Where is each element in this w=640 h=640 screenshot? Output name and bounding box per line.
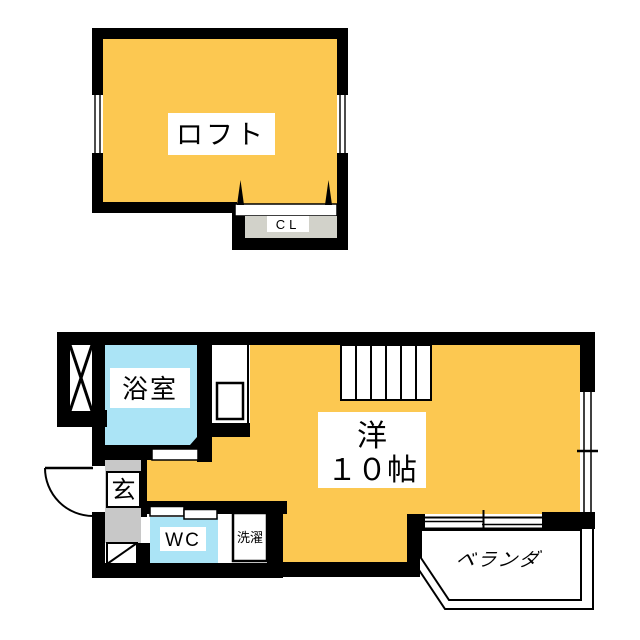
closet-label: CL <box>276 217 301 232</box>
wall-segment <box>542 512 580 530</box>
window-opening <box>92 95 103 153</box>
room-label-line2: １０帖 <box>327 454 417 487</box>
shoe-cabinet <box>107 543 137 564</box>
main-floor-plan: 洗濯 ベ <box>45 332 598 609</box>
toilet-label: WC <box>165 530 201 551</box>
entrance-label: 玄 <box>112 477 136 504</box>
wall-segment <box>92 563 283 578</box>
door-swing-arc <box>45 468 93 516</box>
wall-segment <box>232 238 348 250</box>
loft-window-right <box>337 95 348 153</box>
loft-label: ロフト <box>176 120 266 150</box>
balcony: ベランダ <box>413 529 593 609</box>
loft-plan: CL ロフト <box>92 28 348 250</box>
loft-window-left <box>92 95 103 153</box>
loft-ladder <box>341 345 431 400</box>
door-opening <box>92 466 105 512</box>
wall-segment <box>92 202 237 213</box>
window-opening <box>337 95 348 153</box>
laundry-space: 洗濯 <box>233 513 267 561</box>
floor-plan-image: CL ロフト <box>0 0 640 640</box>
wall-segment <box>420 514 425 530</box>
toilet-door-panel <box>184 510 217 520</box>
wall-segment <box>197 345 212 462</box>
wall-segment <box>212 423 250 437</box>
bathroom-label: 浴室 <box>122 374 178 404</box>
room-label-line1: 洋 <box>357 420 387 453</box>
toilet-door-panel <box>150 507 184 517</box>
bathroom-door <box>152 449 198 460</box>
closet-opening-strip <box>235 204 337 216</box>
wall-segment <box>92 345 105 578</box>
wall-segment <box>137 543 150 578</box>
pipe-space-box <box>70 345 92 411</box>
kitchen-sink <box>217 383 243 419</box>
main-room-label: 洋 １０帖 <box>318 412 426 488</box>
balcony-label: ベランダ <box>454 549 543 571</box>
wall-segment <box>92 28 348 39</box>
kitchen-counter <box>212 345 248 423</box>
laundry-label: 洗濯 <box>237 530 263 545</box>
wall-segment <box>283 562 420 577</box>
main-window-right <box>577 392 598 512</box>
wall-segment <box>57 332 595 345</box>
entrance-door <box>45 466 105 516</box>
